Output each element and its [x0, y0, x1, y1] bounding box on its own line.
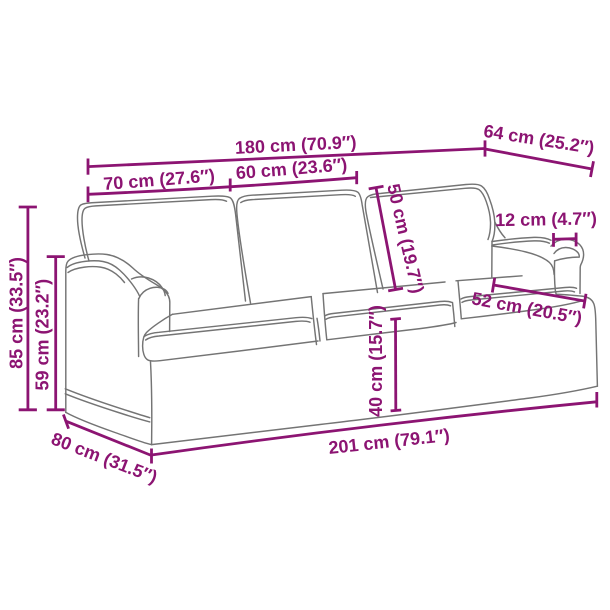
- svg-text:59 cm (23.2″): 59 cm (23.2″): [33, 279, 53, 391]
- svg-text:40 cm (15.7″): 40 cm (15.7″): [366, 305, 386, 417]
- svg-text:85 cm (33.5″): 85 cm (33.5″): [6, 257, 26, 369]
- svg-text:12 cm (4.7″): 12 cm (4.7″): [495, 208, 597, 230]
